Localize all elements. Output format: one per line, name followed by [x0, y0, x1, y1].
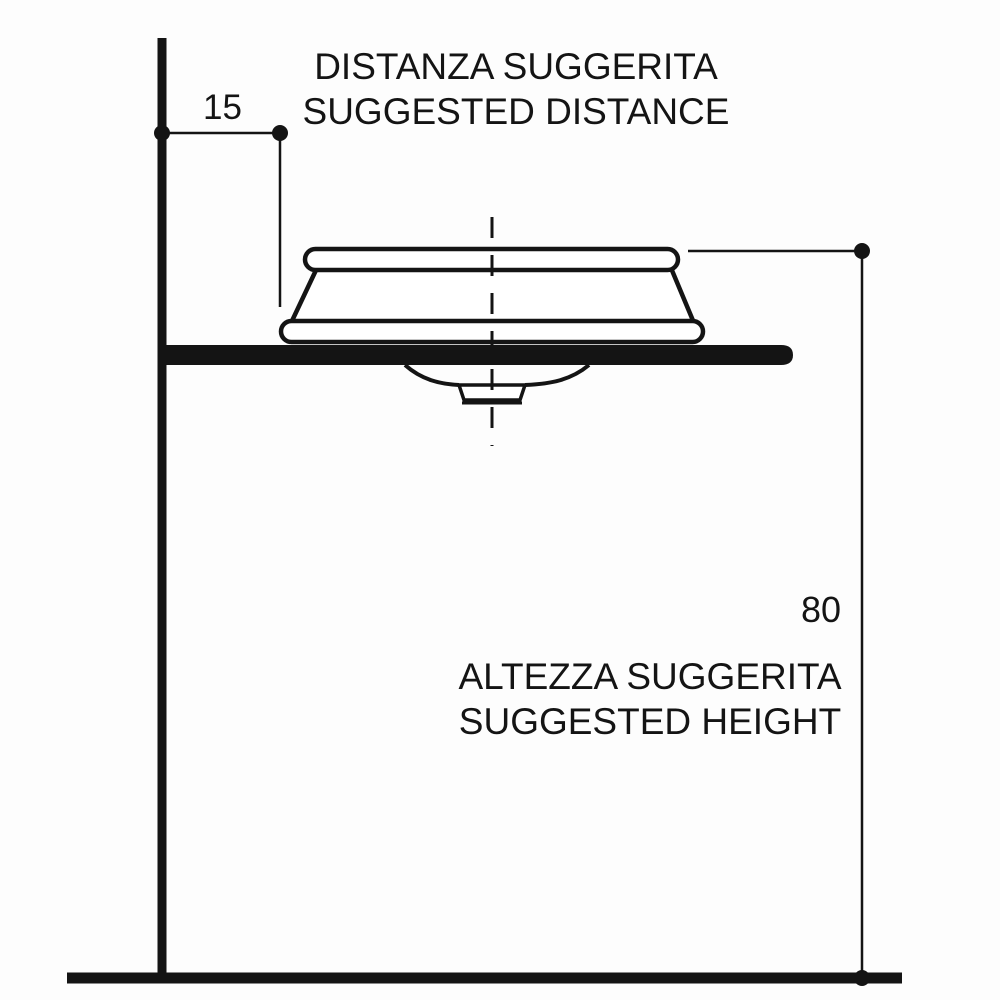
installation-diagram: DISTANZA SUGGERITA SUGGESTED DISTANCE 15…: [0, 0, 1000, 1000]
suggested-height-title-italian: ALTEZZA SUGGERITA: [415, 654, 885, 699]
suggested-distance-title: DISTANZA SUGGERITA SUGGESTED DISTANCE: [281, 44, 751, 134]
suggested-height-title-english: SUGGESTED HEIGHT: [415, 699, 885, 744]
height-dimension-value: 80: [786, 592, 856, 628]
height-dimension-dot-bottom: [854, 970, 870, 986]
countertop: [163, 345, 793, 365]
suggested-height-title: ALTEZZA SUGGERITA SUGGESTED HEIGHT: [415, 654, 885, 744]
suggested-distance-title-english: SUGGESTED DISTANCE: [281, 89, 751, 134]
distance-dimension-dot-wall: [154, 125, 170, 141]
suggested-distance-title-italian: DISTANZA SUGGERITA: [281, 44, 751, 89]
distance-dimension-value: 15: [180, 90, 265, 126]
diagram-drawing: [0, 0, 1000, 1000]
drain-funnel-right: [525, 365, 589, 385]
drain-funnel-left: [405, 365, 459, 385]
